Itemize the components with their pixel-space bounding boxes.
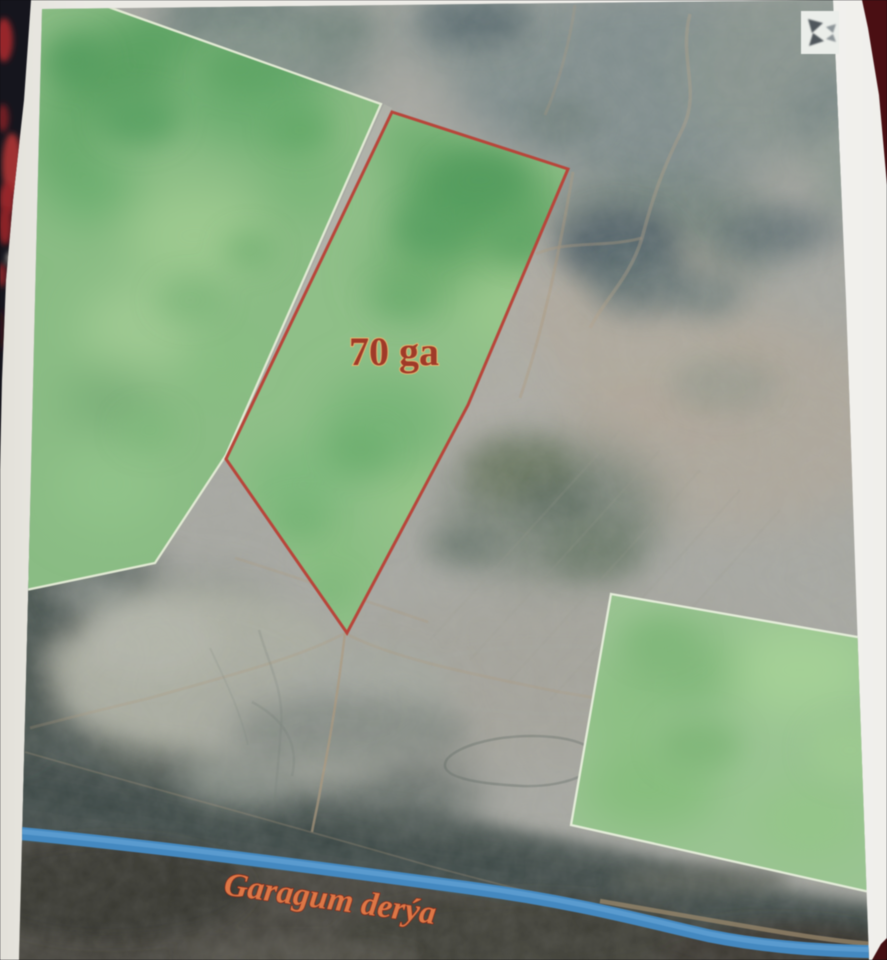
svg-text:70 ga: 70 ga — [349, 329, 439, 374]
